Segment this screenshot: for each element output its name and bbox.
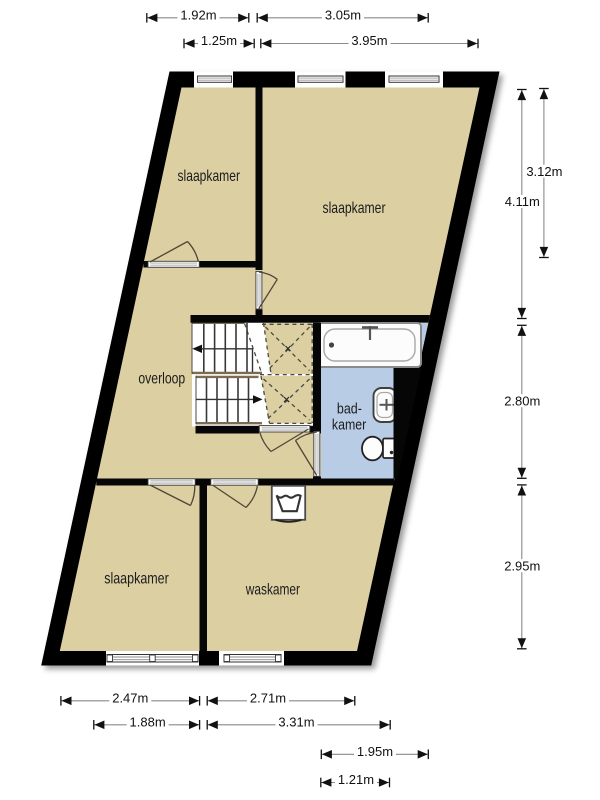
- svg-text:bad-: bad-: [337, 402, 362, 418]
- svg-text:1.88m: 1.88m: [130, 715, 166, 730]
- svg-text:2.71m: 2.71m: [250, 691, 286, 706]
- svg-text:1.21m: 1.21m: [338, 772, 374, 787]
- svg-text:slaapkamer: slaapkamer: [178, 168, 241, 185]
- svg-text:3.31m: 3.31m: [278, 715, 314, 730]
- svg-text:1.25m: 1.25m: [201, 33, 237, 48]
- svg-text:2.80m: 2.80m: [504, 393, 540, 408]
- svg-text:4.11m: 4.11m: [505, 194, 540, 209]
- svg-text:slaapkamer: slaapkamer: [104, 570, 169, 587]
- svg-text:3.12m: 3.12m: [526, 164, 562, 179]
- svg-text:overloop: overloop: [138, 370, 185, 387]
- svg-text:3.95m: 3.95m: [351, 33, 387, 48]
- svg-text:slaapkamer: slaapkamer: [323, 200, 387, 217]
- svg-text:waskamer: waskamer: [245, 582, 300, 599]
- svg-text:2.95m: 2.95m: [504, 558, 540, 573]
- svg-text:kamer: kamer: [332, 417, 367, 433]
- svg-text:2.47m: 2.47m: [112, 691, 148, 706]
- svg-text:3.05m: 3.05m: [325, 8, 361, 23]
- svg-text:1.92m: 1.92m: [180, 8, 216, 23]
- svg-text:1.95m: 1.95m: [357, 744, 393, 759]
